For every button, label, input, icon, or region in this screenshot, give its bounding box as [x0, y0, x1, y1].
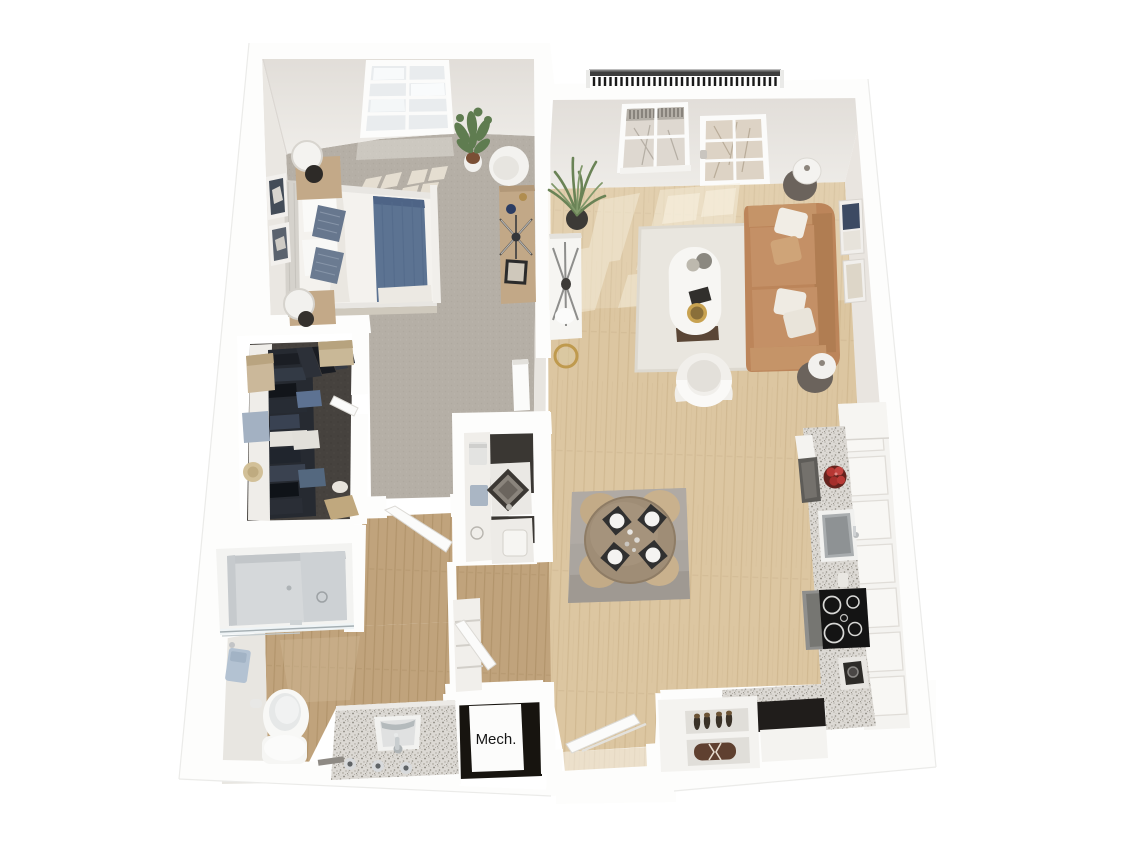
svg-text:Mech.: Mech.	[476, 731, 517, 748]
